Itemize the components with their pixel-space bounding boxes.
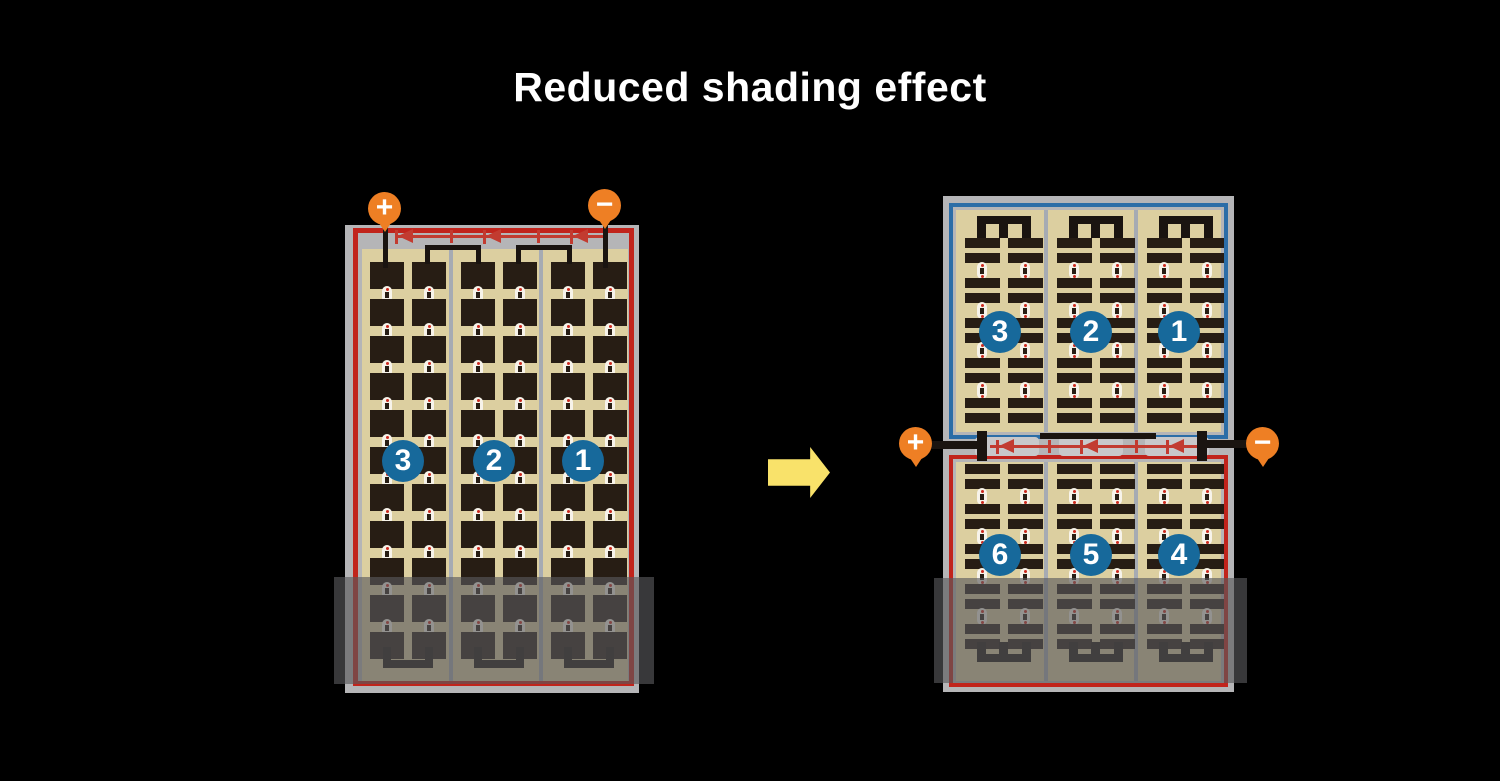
solar-half-cell (1190, 358, 1225, 368)
solar-half-cell (1147, 413, 1182, 423)
connector-dot (609, 547, 612, 550)
connector-dot (567, 325, 570, 328)
connector-dot (609, 436, 612, 439)
solar-half-cell (1190, 278, 1225, 288)
cell-connector-icon (1159, 488, 1169, 505)
solar-cell (551, 410, 585, 437)
connector-dot (1116, 264, 1119, 267)
solar-half-cell (1008, 278, 1043, 288)
solar-half-cell (1147, 398, 1182, 408)
solar-cell (461, 521, 495, 548)
solar-half-cell (1057, 504, 1092, 514)
solar-half-cell (1190, 398, 1225, 408)
solar-cell (412, 299, 446, 326)
solar-half-cell (1147, 464, 1182, 474)
connector-core (1072, 494, 1076, 500)
connector-dot (519, 362, 522, 365)
cell-connector-icon (1202, 342, 1212, 359)
connector-core (1205, 534, 1209, 540)
connector-dot (981, 490, 984, 493)
string-connector (1069, 216, 1078, 238)
solar-half-cell (1057, 238, 1092, 248)
solar-half-cell (1100, 464, 1135, 474)
solar-cell (461, 299, 495, 326)
connector-core (1162, 494, 1166, 500)
connector-dot (386, 547, 389, 550)
string-connector (1204, 216, 1213, 238)
solar-half-cell (965, 358, 1000, 368)
connector-core (980, 348, 984, 354)
solar-half-cell (1190, 238, 1225, 248)
connector-dot (477, 436, 480, 439)
string-connector (1114, 216, 1123, 238)
connector-dot (477, 362, 480, 365)
connector-dot (1163, 384, 1166, 387)
connector-core (1072, 388, 1076, 394)
bypass-diode-icon (398, 229, 413, 243)
connector-core (566, 551, 570, 557)
connector-dot (1206, 304, 1209, 307)
minus-terminal-icon: − (1246, 427, 1279, 460)
connector-core (476, 329, 480, 335)
solar-half-cell (1057, 413, 1092, 423)
connector-dot (386, 510, 389, 513)
string-number-badge: 2 (1070, 311, 1112, 353)
minus-symbol: − (1254, 428, 1272, 458)
solar-cell (461, 484, 495, 511)
string-number: 6 (992, 540, 1009, 570)
solar-half-cell (1190, 504, 1225, 514)
solar-cell (370, 521, 404, 548)
solar-half-cell (1057, 278, 1092, 288)
solar-half-cell (1057, 358, 1092, 368)
connector-core (518, 514, 522, 520)
solar-cell (503, 484, 537, 511)
string-connector (977, 216, 986, 238)
solar-cell (503, 262, 537, 289)
solar-half-cell (965, 398, 1000, 408)
string-number: 2 (1083, 317, 1100, 347)
connector-dot (567, 399, 570, 402)
string-bridge (425, 245, 430, 264)
connector-dot (1116, 570, 1119, 573)
solar-cell (503, 410, 537, 437)
connector-core (385, 329, 389, 335)
bypass-diode-icon (1083, 439, 1098, 453)
string-connector (1159, 216, 1168, 238)
connector-core (385, 477, 389, 483)
bypass-diode-icon (1169, 439, 1184, 453)
string-connector (1022, 216, 1031, 238)
string-connector (999, 216, 1008, 238)
connector-core (518, 403, 522, 409)
cell-connector-icon (1020, 528, 1030, 545)
solar-cell (593, 299, 627, 326)
diode-tick (1135, 440, 1138, 453)
solar-half-cell (1100, 504, 1135, 514)
connector-dot (1116, 384, 1119, 387)
connector-dot (1163, 304, 1166, 307)
connector-dot (567, 547, 570, 550)
solar-half-cell (1147, 238, 1182, 248)
connector-dot (1073, 304, 1076, 307)
connector-core (1162, 308, 1166, 314)
connector-dot (1206, 530, 1209, 533)
connector-dot (386, 288, 389, 291)
connector-dot (386, 325, 389, 328)
cell-connector-icon (977, 262, 987, 279)
solar-half-cell (1057, 398, 1092, 408)
connector-dot (1024, 344, 1027, 347)
connector-dot (981, 304, 984, 307)
connector-dot (386, 362, 389, 365)
connector-dot (567, 362, 570, 365)
connector-dot (428, 510, 431, 513)
connector-core (566, 403, 570, 409)
connector-core (1115, 268, 1119, 274)
connector-core (427, 440, 431, 446)
connector-dot (1073, 530, 1076, 533)
string-number-badge: 5 (1070, 534, 1112, 576)
connector-dot (1163, 490, 1166, 493)
terminal-tail (1257, 458, 1269, 467)
cell-connector-icon (977, 382, 987, 399)
string-number-badge: 1 (562, 440, 604, 482)
solar-half-cell (965, 413, 1000, 423)
solar-cell (370, 336, 404, 363)
connector-dot (428, 288, 431, 291)
connector-core (980, 388, 984, 394)
cell-connector-icon (1159, 382, 1169, 399)
solar-half-cell (1100, 278, 1135, 288)
connector-core (566, 514, 570, 520)
plus-terminal-icon: + (899, 427, 932, 460)
connector-dot (1206, 570, 1209, 573)
connector-dot (428, 399, 431, 402)
solar-cell (551, 299, 585, 326)
connector-dot (1116, 530, 1119, 533)
cell-connector-icon (1112, 342, 1122, 359)
solar-cell (412, 262, 446, 289)
connector-core (566, 366, 570, 372)
connector-dot (981, 570, 984, 573)
connector-core (1023, 388, 1027, 394)
connector-core (476, 403, 480, 409)
diagram-title: Reduced shading effect (0, 64, 1500, 111)
string-bridge (476, 245, 481, 264)
connector-dot (428, 547, 431, 550)
connector-dot (567, 436, 570, 439)
connector-dot (519, 325, 522, 328)
cell-connector-icon (1020, 302, 1030, 319)
solar-cell (461, 410, 495, 437)
solar-cell (412, 484, 446, 511)
solar-half-cell (1100, 398, 1135, 408)
connector-dot (519, 288, 522, 291)
bypass-diode-icon (486, 229, 501, 243)
solar-half-cell (1190, 413, 1225, 423)
solar-cell (412, 373, 446, 400)
connector-core (980, 308, 984, 314)
connector-core (518, 477, 522, 483)
connector-core (1162, 268, 1166, 274)
connector-dot (477, 288, 480, 291)
connector-dot (386, 399, 389, 402)
connector-core (1072, 534, 1076, 540)
cell-connector-icon (1202, 302, 1212, 319)
connector-core (1023, 494, 1027, 500)
connector-core (427, 551, 431, 557)
solar-cell (412, 521, 446, 548)
connector-dot (981, 264, 984, 267)
minus-terminal-icon: − (588, 189, 621, 222)
connector-core (518, 366, 522, 372)
connector-dot (1073, 570, 1076, 573)
connector-dot (519, 399, 522, 402)
connector-core (1023, 534, 1027, 540)
right-arrow-icon (768, 447, 830, 498)
solar-cell (370, 484, 404, 511)
connector-core (1115, 494, 1119, 500)
connector-core (385, 366, 389, 372)
solar-half-cell (1190, 464, 1225, 474)
solar-half-cell (1008, 504, 1043, 514)
solar-half-cell (965, 504, 1000, 514)
string-number: 2 (486, 446, 503, 476)
solar-half-cell (1100, 413, 1135, 423)
bypass-diode-icon (573, 229, 588, 243)
bypass-diode-icon (999, 439, 1014, 453)
solar-cell (461, 336, 495, 363)
solar-half-cell (1008, 398, 1043, 408)
connector-core (427, 292, 431, 298)
cell-connector-icon (1112, 262, 1122, 279)
string-number: 1 (575, 446, 592, 476)
solar-half-cell (1100, 238, 1135, 248)
solar-cell (551, 521, 585, 548)
string-number-badge: 6 (979, 534, 1021, 576)
junction-bar (1197, 431, 1207, 461)
connector-dot (428, 362, 431, 365)
connector-core (385, 551, 389, 557)
connector-core (427, 403, 431, 409)
string-number: 3 (395, 446, 412, 476)
connector-core (980, 534, 984, 540)
connector-core (476, 477, 480, 483)
connector-core (608, 440, 612, 446)
plus-symbol: + (907, 428, 925, 458)
connector-core (427, 329, 431, 335)
solar-cell (551, 262, 585, 289)
cell-connector-icon (977, 488, 987, 505)
connector-dot (477, 399, 480, 402)
cell-connector-icon (1112, 488, 1122, 505)
string-number: 3 (992, 317, 1009, 347)
connector-core (476, 514, 480, 520)
connector-core (476, 366, 480, 372)
solar-half-cell (965, 238, 1000, 248)
solar-cell (503, 373, 537, 400)
solar-cell (461, 262, 495, 289)
solar-cell (412, 410, 446, 437)
connector-dot (1206, 490, 1209, 493)
plus-symbol: + (376, 193, 394, 223)
connector-dot (477, 547, 480, 550)
connector-core (1205, 348, 1209, 354)
connector-core (1115, 534, 1119, 540)
connector-dot (1073, 264, 1076, 267)
solar-half-cell (965, 278, 1000, 288)
solar-cell (503, 299, 537, 326)
cell-connector-icon (1202, 262, 1212, 279)
connector-core (980, 268, 984, 274)
connector-dot (519, 473, 522, 476)
solar-cell (593, 521, 627, 548)
junction-bar (977, 431, 987, 461)
connector-dot (567, 288, 570, 291)
solar-cell (370, 373, 404, 400)
wire (1040, 433, 1156, 439)
connector-core (566, 292, 570, 298)
string-number: 5 (1083, 540, 1100, 570)
terminal-tail (910, 458, 922, 467)
connector-dot (428, 473, 431, 476)
connector-dot (1024, 264, 1027, 267)
connector-core (1162, 388, 1166, 394)
connector-core (980, 494, 984, 500)
connector-dot (1073, 384, 1076, 387)
diode-tick (537, 230, 540, 243)
connector-core (1072, 308, 1076, 314)
connector-dot (609, 473, 612, 476)
connector-dot (519, 436, 522, 439)
connector-dot (1163, 264, 1166, 267)
string-number-badge: 2 (473, 440, 515, 482)
connector-core (476, 292, 480, 298)
connector-dot (1024, 530, 1027, 533)
solar-half-cell (1147, 504, 1182, 514)
connector-core (1023, 268, 1027, 274)
solar-cell (370, 299, 404, 326)
solar-cell (593, 262, 627, 289)
connector-core (608, 329, 612, 335)
solar-cell (593, 410, 627, 437)
connector-core (385, 514, 389, 520)
right-shading-overlay (934, 578, 1247, 683)
cell-connector-icon (1112, 382, 1122, 399)
connector-dot (981, 530, 984, 533)
connector-core (1023, 348, 1027, 354)
terminal-tail (379, 223, 391, 232)
cell-connector-icon (1159, 262, 1169, 279)
solar-cell (551, 373, 585, 400)
minus-symbol: − (596, 190, 614, 220)
connector-core (1023, 308, 1027, 314)
connector-core (518, 292, 522, 298)
connector-core (518, 551, 522, 557)
solar-half-cell (1008, 358, 1043, 368)
diode-tick (450, 230, 453, 243)
solar-half-cell (965, 464, 1000, 474)
connector-core (1115, 348, 1119, 354)
string-connector (1091, 216, 1100, 238)
connector-core (1205, 494, 1209, 500)
connector-dot (609, 399, 612, 402)
string-bridge (567, 245, 572, 264)
connector-core (385, 403, 389, 409)
connector-core (385, 292, 389, 298)
connector-dot (609, 325, 612, 328)
cell-connector-icon (1020, 262, 1030, 279)
wire (930, 441, 978, 449)
connector-dot (386, 436, 389, 439)
connector-dot (428, 436, 431, 439)
connector-core (608, 551, 612, 557)
solar-cell (503, 521, 537, 548)
cell-connector-icon (1202, 488, 1212, 505)
connector-core (608, 477, 612, 483)
connector-core (1205, 268, 1209, 274)
cell-connector-icon (1069, 488, 1079, 505)
connector-dot (1206, 384, 1209, 387)
solar-half-cell (1147, 278, 1182, 288)
string-number-badge: 1 (1158, 311, 1200, 353)
connector-core (427, 366, 431, 372)
connector-dot (1116, 304, 1119, 307)
string-number: 4 (1171, 540, 1188, 570)
string-number: 1 (1171, 317, 1188, 347)
connector-core (427, 477, 431, 483)
cell-connector-icon (1202, 382, 1212, 399)
cell-connector-icon (1020, 382, 1030, 399)
solar-half-cell (1100, 358, 1135, 368)
connector-dot (1024, 304, 1027, 307)
connector-core (1205, 388, 1209, 394)
solar-cell (593, 484, 627, 511)
solar-half-cell (1057, 464, 1092, 474)
connector-core (608, 292, 612, 298)
connector-dot (609, 510, 612, 513)
solar-cell (461, 373, 495, 400)
cell-connector-icon (1069, 382, 1079, 399)
reduced-shading-diagram: Reduced shading effect 3 2 1 + − 3 2 1 6… (0, 0, 1500, 781)
connector-dot (519, 547, 522, 550)
diode-tick (1048, 440, 1051, 453)
connector-core (1205, 308, 1209, 314)
connector-core (608, 403, 612, 409)
string-bridge (516, 245, 572, 250)
cell-connector-icon (1069, 262, 1079, 279)
connector-core (1072, 348, 1076, 354)
string-connector (1181, 216, 1190, 238)
string-number-badge: 3 (382, 440, 424, 482)
connector-core (608, 514, 612, 520)
connector-dot (1024, 490, 1027, 493)
connector-dot (1206, 264, 1209, 267)
connector-dot (519, 510, 522, 513)
string-number-badge: 3 (979, 311, 1021, 353)
string-bridge (516, 245, 521, 264)
cell-connector-icon (1112, 302, 1122, 319)
connector-dot (477, 325, 480, 328)
solar-cell (551, 484, 585, 511)
string-bridge (425, 245, 481, 250)
cell-connector-icon (1020, 342, 1030, 359)
connector-dot (609, 362, 612, 365)
solar-half-cell (1147, 358, 1182, 368)
connector-dot (477, 510, 480, 513)
connector-dot (609, 288, 612, 291)
